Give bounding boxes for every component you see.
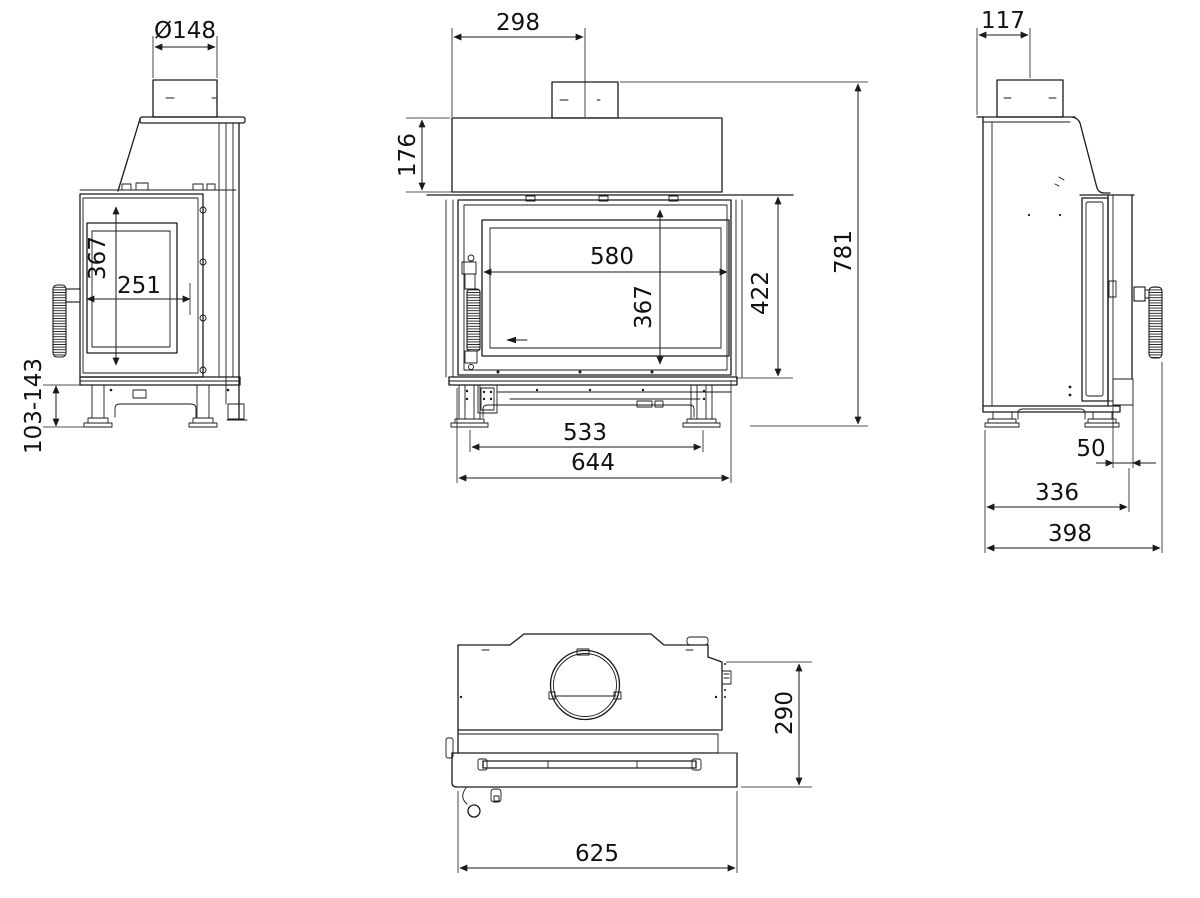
dim-glass-width-front: 580 (484, 244, 727, 272)
dim-label-top-width: 625 (575, 841, 619, 867)
dim-label-feet-spacing: 533 (563, 420, 607, 446)
dim-glass-height-front: 367 (631, 210, 660, 364)
dim-overall-depth: 398 (985, 362, 1162, 553)
door-handle-top (463, 788, 501, 817)
dim-label-overall-depth: 398 (1048, 521, 1092, 547)
dim-label-glass-height-left: 367 (85, 236, 111, 280)
dim-flue-offset-right: 117 (977, 8, 1030, 115)
dim-label-flue-diameter: Ø148 (154, 18, 216, 44)
air-control-arrow (506, 337, 527, 343)
dim-label-glass-width-front: 580 (590, 244, 634, 270)
door (458, 196, 731, 375)
dim-label-overall-height: 781 (831, 230, 857, 274)
base-plate (446, 738, 737, 787)
glass (482, 220, 729, 356)
dim-leg-height: 103-143 (21, 358, 92, 454)
back-panel (219, 123, 247, 420)
dim-label-glass-width-left: 251 (117, 273, 161, 299)
dim-label-overall-width: 644 (571, 450, 615, 476)
dim-flue-diameter: Ø148 (153, 18, 217, 78)
dim-feet-spacing: 533 (470, 420, 703, 452)
dim-top-depth: 290 (726, 662, 812, 787)
view-right-side: 117 50 336 398 (977, 8, 1162, 553)
flue-pipe (997, 80, 1063, 117)
dim-label-flue-offset-right: 117 (981, 8, 1025, 34)
foot (455, 419, 484, 423)
hood-slope (1072, 117, 1110, 193)
foot (193, 418, 213, 423)
dim-label-door-height: 422 (748, 271, 774, 315)
door-handle (1134, 287, 1162, 358)
hood-slope (118, 119, 140, 191)
latch (722, 671, 731, 684)
dim-door-front-offset: 50 (1076, 405, 1156, 468)
dim-label-door-front-offset: 50 (1076, 436, 1105, 462)
body-outline (458, 634, 722, 753)
door-edge (1080, 195, 1134, 405)
base-and-legs (983, 386, 1120, 427)
top-plate (140, 117, 245, 123)
dim-hood-height: 176 (395, 118, 452, 192)
base-and-legs (80, 377, 240, 427)
dim-label-glass-height-front: 367 (631, 285, 657, 329)
flue-pipe (153, 80, 217, 117)
dim-label-body-depth: 336 (1035, 480, 1079, 506)
drawing-page: Ø148 367 251 103-143 (0, 0, 1200, 898)
dim-label-flue-offset-front: 298 (496, 10, 540, 36)
foot (88, 418, 108, 423)
dim-label-hood-height: 176 (395, 133, 421, 177)
technical-drawing: Ø148 367 251 103-143 (0, 0, 1200, 898)
dim-label-leg-height: 103-143 (21, 358, 47, 454)
view-top: 290 625 (446, 634, 812, 873)
foot (988, 419, 1016, 423)
dim-flue-offset-front: 298 (452, 10, 585, 117)
foot (1088, 419, 1116, 423)
foot (687, 419, 716, 423)
door-handle (53, 285, 80, 357)
dim-top-width: 625 (458, 791, 737, 873)
view-front: 298 176 580 367 422 781 (395, 10, 868, 483)
dim-body-depth: 336 (985, 430, 1129, 512)
door-front-bar (478, 759, 701, 770)
flue-opening (549, 649, 621, 720)
dim-door-height: 422 (736, 197, 793, 378)
view-left-side: Ø148 367 251 103-143 (21, 18, 247, 454)
dim-label-top-depth: 290 (772, 691, 798, 735)
latch-label (1109, 281, 1116, 297)
hood (452, 118, 722, 192)
door-handle (462, 255, 480, 370)
